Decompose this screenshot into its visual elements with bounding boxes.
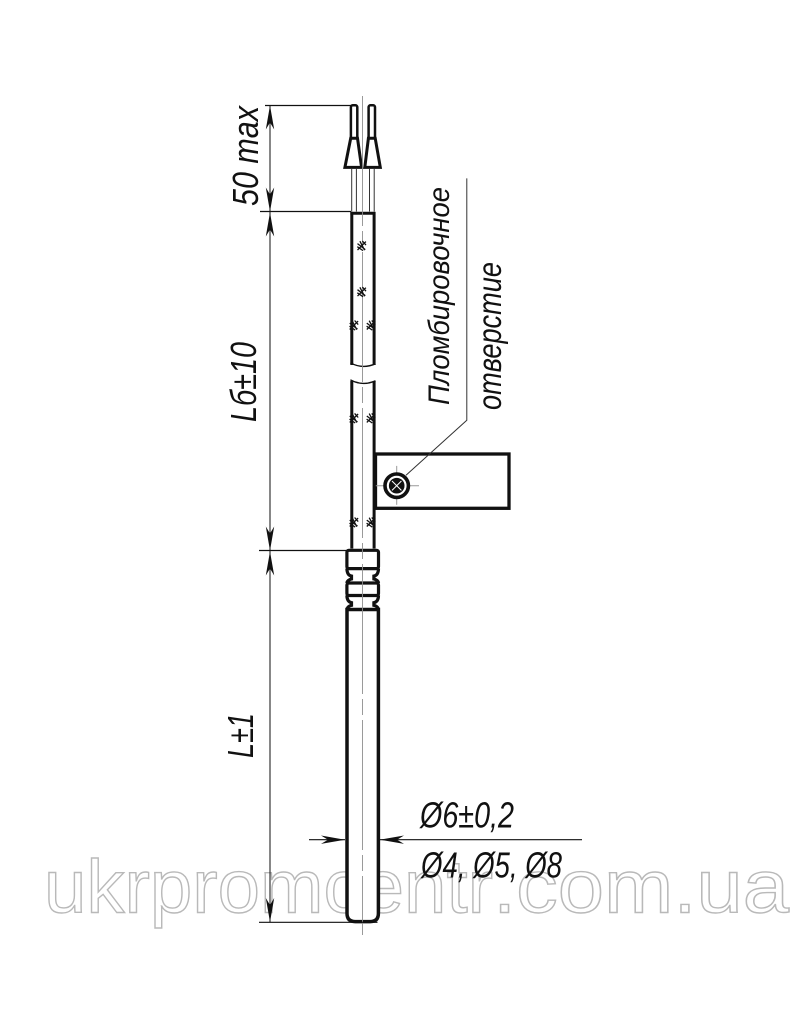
svg-text:Ø6±0,2: Ø6±0,2 (419, 795, 514, 836)
svg-text:50 max: 50 max (225, 104, 266, 206)
svg-text:отверстие: отверстие (471, 262, 508, 410)
svg-text:Ø4, Ø5, Ø8: Ø4, Ø5, Ø8 (420, 845, 562, 886)
svg-text:L±1: L±1 (220, 713, 261, 758)
svg-text:Пломбировочное: Пломбировочное (423, 187, 456, 405)
svg-text:Lб±10: Lб±10 (223, 342, 264, 422)
